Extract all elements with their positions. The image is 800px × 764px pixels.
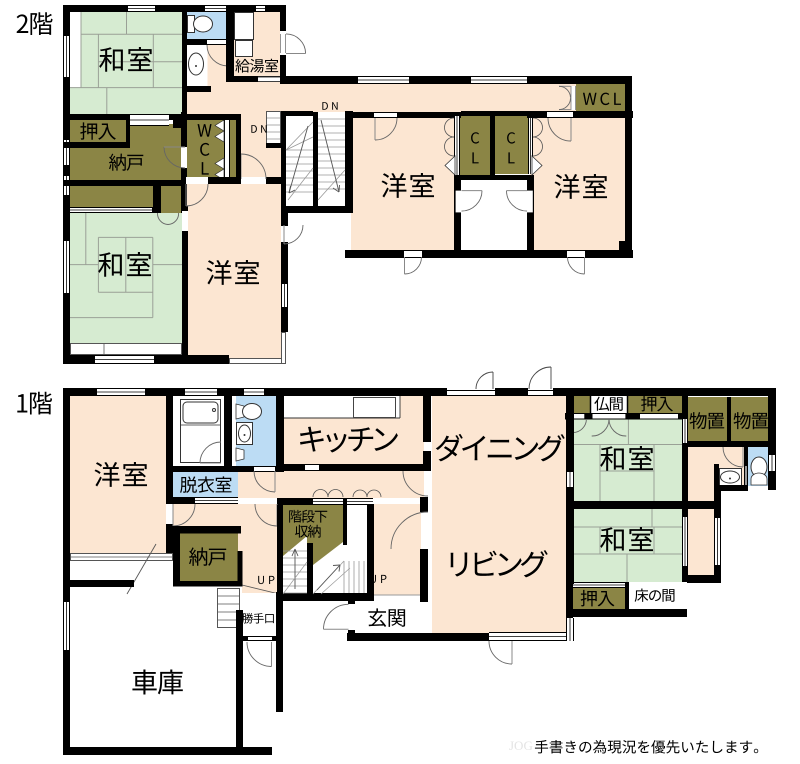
svg-text:JOG: JOG xyxy=(509,738,533,753)
